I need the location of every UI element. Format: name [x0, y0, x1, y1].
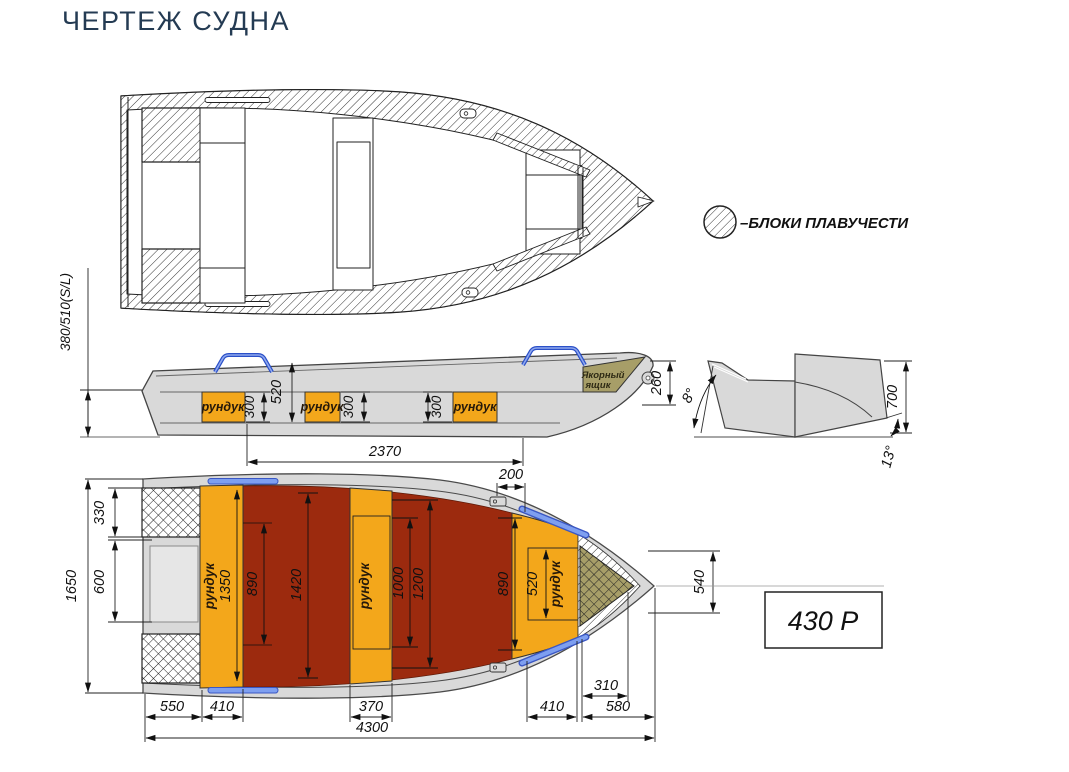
- svg-text:200: 200: [498, 467, 523, 483]
- buoyancy-symbol-icon: [704, 206, 736, 238]
- dim-410-stern: 410: [203, 699, 242, 717]
- dim-bottom-angle-8: 8°: [679, 366, 716, 433]
- plan-locker-bow-label: рундук: [548, 560, 563, 608]
- dim-block-330: 330: [92, 488, 145, 537]
- dim-4300: 4300: [146, 720, 654, 738]
- dim-580: 580: [583, 699, 654, 717]
- svg-text:520: 520: [525, 572, 541, 596]
- legend-label: –БЛОКИ ПЛАВУЧЕСТИ: [740, 215, 909, 232]
- svg-text:1000: 1000: [391, 567, 407, 599]
- top-middle-bench: [333, 118, 373, 290]
- top-buoyancy-block-starboard: [142, 249, 202, 303]
- dim-550: 550: [146, 699, 201, 717]
- svg-text:300: 300: [242, 395, 257, 418]
- model-plate: 430 Р: [765, 592, 882, 648]
- dim-310: 310: [583, 678, 627, 696]
- plan-locker-mid-label: рундук: [357, 562, 372, 610]
- plan-pad-stern-port: [208, 479, 278, 485]
- svg-text:1200: 1200: [411, 568, 427, 600]
- plan-motor-well: [150, 546, 198, 622]
- svg-text:8°: 8°: [679, 386, 700, 406]
- svg-text:1350: 1350: [218, 570, 234, 602]
- side-locker-mid-label: рундук: [300, 400, 344, 414]
- svg-text:410: 410: [210, 699, 234, 715]
- top-gunwale-slot-port: [205, 98, 270, 103]
- svg-text:300: 300: [429, 395, 444, 418]
- svg-text:380/510(S/L): 380/510(S/L): [58, 273, 73, 351]
- svg-text:520: 520: [269, 380, 285, 404]
- svg-text:580: 580: [606, 699, 630, 715]
- svg-text:310: 310: [594, 678, 618, 694]
- svg-text:890: 890: [496, 572, 512, 596]
- drawing-page: ЧЕРТЕЖ СУДНА: [0, 0, 1069, 772]
- section-midship-half: [708, 361, 795, 437]
- plan-buoyancy-block-port: [142, 488, 200, 537]
- svg-text:260: 260: [649, 371, 665, 396]
- top-stern-bench: [200, 108, 245, 303]
- dim-deadrise-13: 13°: [879, 413, 902, 470]
- plan-fitting-top: [490, 497, 506, 506]
- plan-locker-stern-label: рундук: [202, 562, 217, 610]
- svg-text:540: 540: [692, 570, 708, 594]
- plan-buoyancy-block-starboard: [142, 634, 200, 683]
- plan-fitting-bottom: [490, 663, 506, 672]
- boat-drawing: –БЛОКИ ПЛАВУЧЕСТИ рундук рундук рундук: [0, 0, 1069, 772]
- svg-text:700: 700: [885, 385, 901, 409]
- dim-stern-height: 380/510(S/L): [58, 268, 88, 437]
- side-locker-bow-label: рундук: [453, 400, 497, 414]
- model-plate-label: 430 Р: [788, 606, 859, 636]
- svg-text:890: 890: [245, 572, 261, 596]
- svg-text:1650: 1650: [64, 570, 80, 602]
- svg-text:600: 600: [92, 570, 108, 594]
- plan-locker-bow: [512, 513, 578, 659]
- side-locker-front-label: рундук: [201, 400, 245, 414]
- svg-text:370: 370: [359, 699, 383, 715]
- anchor-box-label-2: ящик: [584, 380, 611, 391]
- svg-text:410: 410: [540, 699, 564, 715]
- top-view: [121, 90, 654, 315]
- dim-410-bow: 410: [528, 699, 576, 717]
- svg-text:300: 300: [341, 395, 356, 418]
- top-rowlock-starboard: [462, 288, 478, 297]
- svg-text:13°: 13°: [879, 444, 900, 470]
- legend: –БЛОКИ ПЛАВУЧЕСТИ: [704, 206, 909, 238]
- top-rowlock-port: [460, 109, 476, 118]
- svg-text:330: 330: [92, 501, 108, 525]
- dim-370: 370: [351, 699, 391, 717]
- svg-text:550: 550: [160, 699, 184, 715]
- section-view: 8° 700 13°: [679, 354, 912, 470]
- svg-text:1420: 1420: [289, 569, 305, 601]
- bottom-view: рундук рундук рундук 1350 890 1420: [64, 467, 884, 742]
- top-buoyancy-block-port: [142, 108, 202, 162]
- page-title: ЧЕРТЕЖ СУДНА: [62, 6, 290, 37]
- svg-text:2370: 2370: [368, 444, 401, 460]
- svg-text:4300: 4300: [356, 720, 388, 736]
